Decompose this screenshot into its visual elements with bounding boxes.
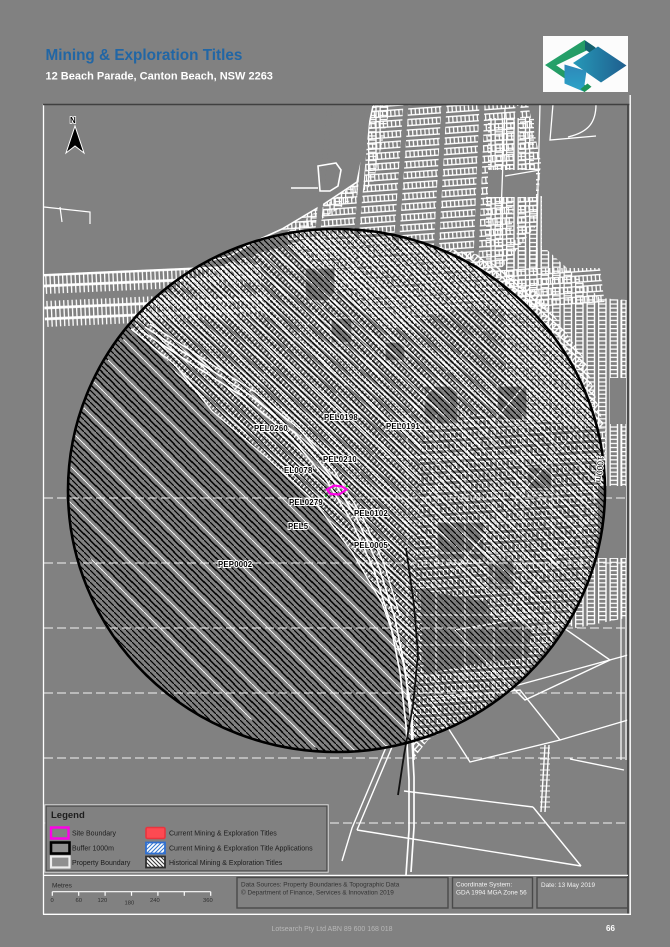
svg-text:PEL0102: PEL0102 <box>354 509 388 518</box>
svg-text:Site Boundary: Site Boundary <box>72 831 116 838</box>
svg-text:Mining & Exploration Titles: Mining & Exploration Titles <box>46 47 243 64</box>
svg-text:0: 0 <box>51 898 54 904</box>
svg-text:Coordinate System:: Coordinate System: <box>456 882 512 889</box>
svg-text:N: N <box>70 116 76 125</box>
svg-text:Metres: Metres <box>52 883 73 890</box>
svg-text:PEL0005: PEL0005 <box>354 541 388 550</box>
svg-text:PEL0279: PEL0279 <box>289 498 323 507</box>
svg-text:PEL0198: PEL0198 <box>324 413 358 422</box>
svg-text:Legend: Legend <box>51 810 85 821</box>
svg-text:Lotsearch Pty Ltd ABN 89 600 1: Lotsearch Pty Ltd ABN 89 600 168 018 <box>271 926 392 933</box>
svg-text:PEL5: PEL5 <box>288 522 309 531</box>
svg-text:PEL0260: PEL0260 <box>254 424 288 433</box>
svg-text:360: 360 <box>203 898 213 904</box>
svg-text:Property Boundary: Property Boundary <box>72 860 131 867</box>
svg-text:60: 60 <box>76 898 82 904</box>
svg-text:Current Mining & Exploration T: Current Mining & Exploration Title Appli… <box>169 846 313 853</box>
svg-text:PEP0002: PEP0002 <box>218 560 253 569</box>
svg-text:© Department of Finance, Servi: © Department of Finance, Services & Inno… <box>241 889 394 897</box>
svg-text:120: 120 <box>98 898 108 904</box>
svg-text:PEL0191: PEL0191 <box>386 422 420 431</box>
svg-text:GDA 1994 MGA Zone 56: GDA 1994 MGA Zone 56 <box>456 890 527 897</box>
svg-text:Date: 13 May 2019: Date: 13 May 2019 <box>541 882 595 889</box>
svg-text:12 Beach Parade, Canton Beach,: 12 Beach Parade, Canton Beach, NSW 2263 <box>46 71 273 83</box>
svg-text:240: 240 <box>150 898 160 904</box>
svg-text:Historical Mining & Exploratio: Historical Mining & Exploration Titles <box>169 860 283 867</box>
svg-text:PEL0210: PEL0210 <box>323 455 357 464</box>
svg-text:180: 180 <box>125 901 135 907</box>
svg-text:Buffer 1000m: Buffer 1000m <box>72 846 114 853</box>
svg-text:Current Mining & Exploration T: Current Mining & Exploration Titles <box>169 831 277 838</box>
svg-text:EL0078: EL0078 <box>284 466 313 475</box>
svg-text:66: 66 <box>606 924 615 933</box>
svg-text:Data Sources: Property Boundar: Data Sources: Property Boundaries & Topo… <box>241 882 400 889</box>
